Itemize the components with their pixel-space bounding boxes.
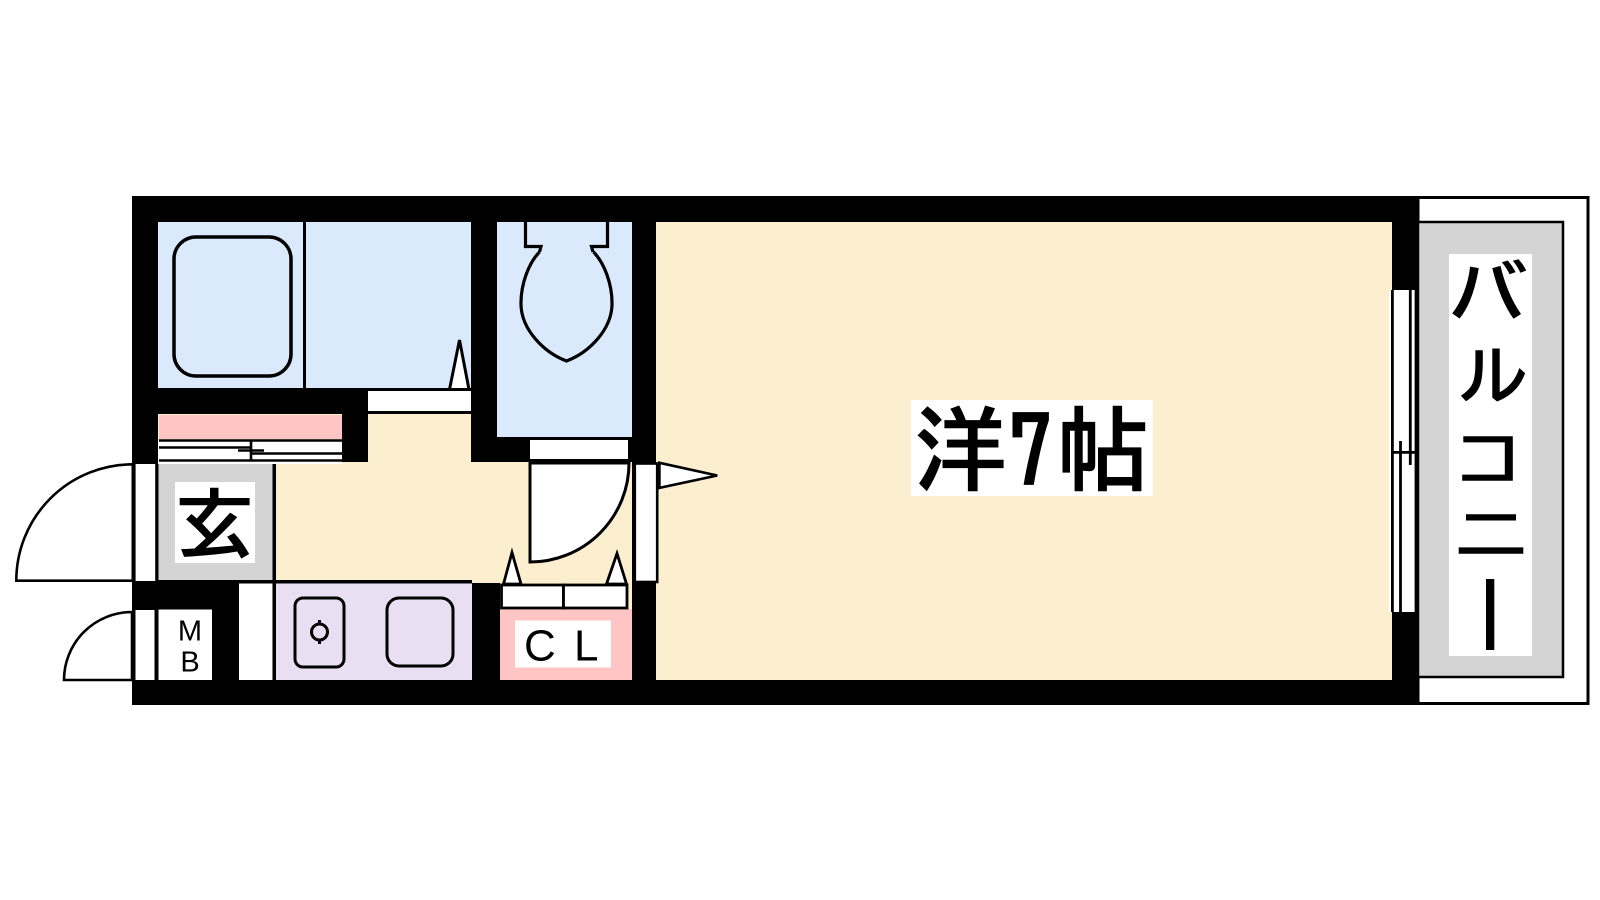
svg-text:C L: C L: [524, 622, 601, 671]
svg-text:M: M: [178, 616, 202, 648]
svg-text:B: B: [180, 647, 199, 679]
